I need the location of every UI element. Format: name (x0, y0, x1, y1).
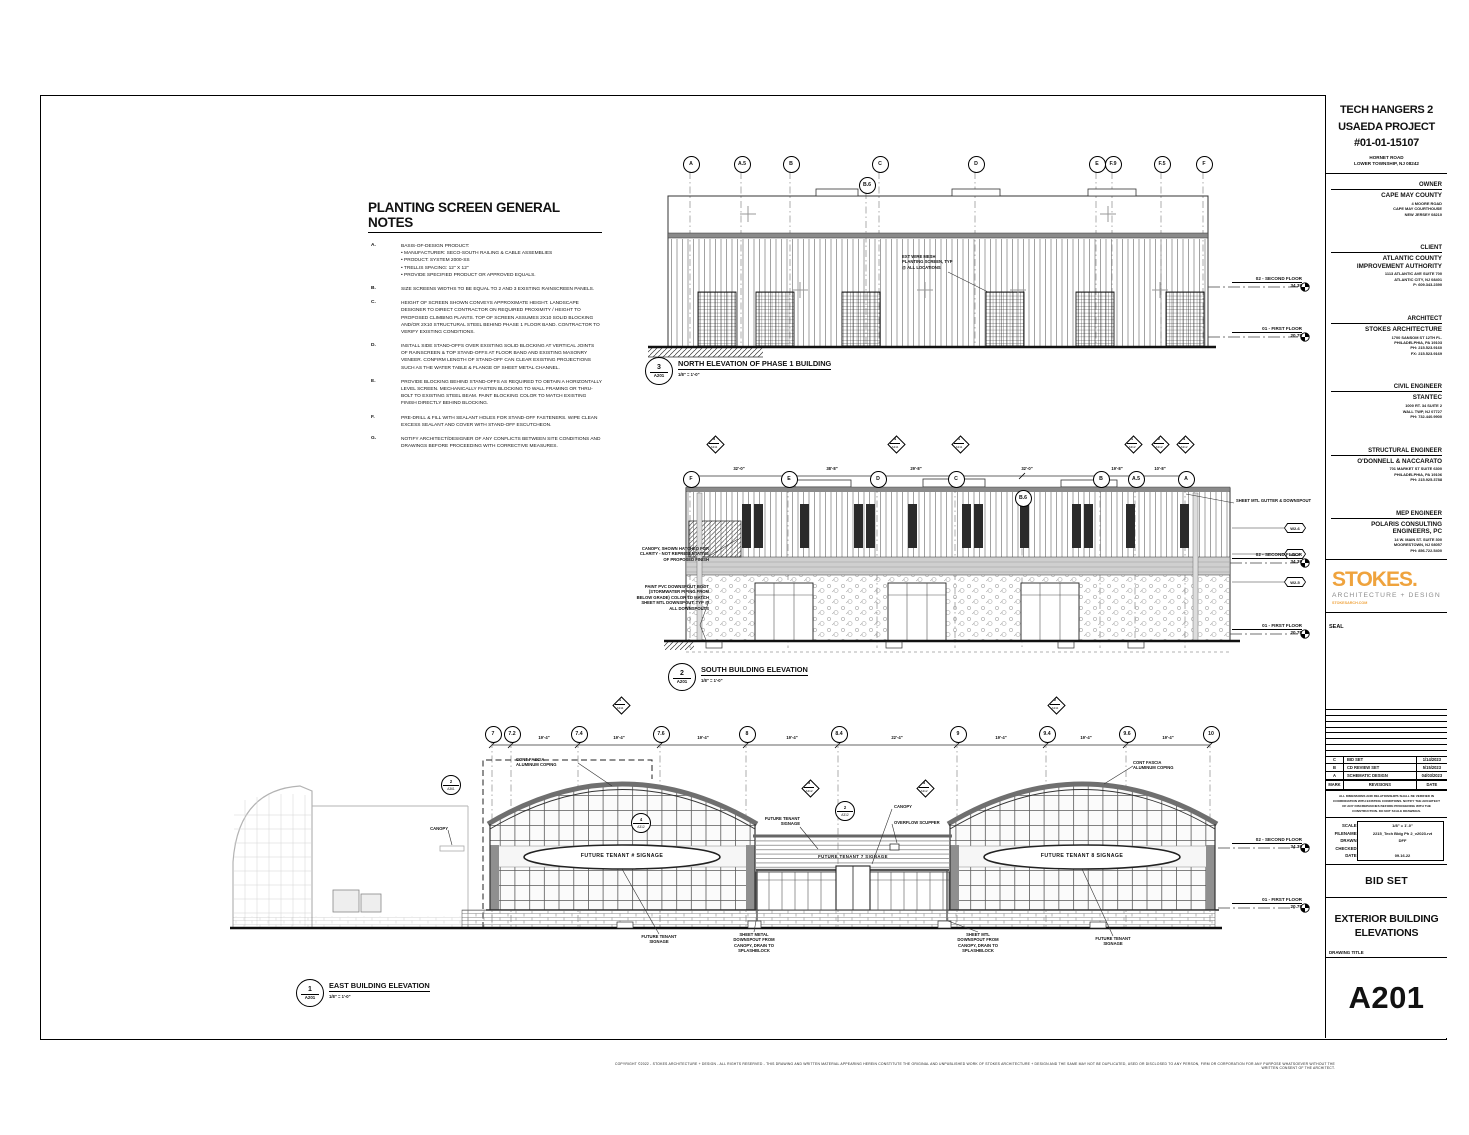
section-sheet: A311 (951, 445, 967, 449)
info-value: 09.16.22 (1361, 853, 1444, 858)
grid-bubble: 10 (1203, 726, 1220, 743)
level-name: 01 - FIRST FLOOR (1232, 897, 1302, 904)
consultant-address: 1000 RT. 34 SUITE 2 WALL TWP, NJ 07727 P… (1331, 403, 1442, 419)
section-number: 2 (1151, 437, 1167, 441)
level-marker: 01 - FIRST FLOOR20.75 (1232, 897, 1302, 909)
note-item: B.SIZE SCREENS WIDTHS TO BE EQUAL TO 2 A… (368, 286, 602, 293)
section-sheet: A311 (1047, 706, 1063, 710)
note-key: E. (368, 379, 401, 408)
dimension-label: 19'-4" (786, 735, 797, 740)
drawing-title-box: EXTERIOR BUILDING ELEVATIONS DRAWING TIT… (1326, 897, 1447, 957)
section-number: 1 (1124, 437, 1140, 441)
note-item: A.BASIS-OF-DESIGN PRODUCT: • MANUFACTURE… (368, 243, 602, 279)
level-marker: 01 - FIRST FLOOR20.75 (1232, 326, 1302, 338)
viewport-number: 2 (673, 670, 692, 679)
dimension-label: 32'-0" (1021, 466, 1032, 471)
revision-header-row: MARK REVISIONS DATE (1326, 780, 1447, 790)
canopy-callout: CANOPY, SHOWN HATCHED FOR CLARITY - NOT … (597, 546, 709, 562)
planting-screen-callout: EXT WIRE MESH PLANTING SCREEN, TYP @ ALL… (902, 254, 994, 270)
grid-bubble: D (870, 471, 887, 488)
section-number: 4 (1176, 437, 1192, 441)
window-tag: W2-5 (1284, 577, 1306, 587)
dimension-label: 29'-8" (910, 466, 921, 471)
dimension-label: 19'-4" (538, 735, 549, 740)
tenant-sign-callout-left: FUTURE TENANT SIGNAGE (630, 934, 688, 945)
viewport-title: SOUTH BUILDING ELEVATION (701, 665, 808, 676)
note-text: INSTALL SIDE STAND-OFFS OVER EXISTING SO… (401, 343, 602, 372)
canopy-callout-mid: CANOPY (894, 804, 944, 809)
firm-logo: STOKES. ARCHITECTURE + DESIGN STOKESARCH… (1326, 559, 1447, 612)
downspout-callout-left: SHEET METAL DOWNSPOUT FROM CANOPY, DRAIN… (722, 932, 786, 954)
revision-desc: SCHEMATIC DESIGN (1344, 772, 1417, 779)
level-elevation: 34.39 (1232, 283, 1302, 288)
level-elevation: 34.39 (1232, 844, 1302, 849)
gutter-callout: SHEET MTL GUTTER & DOWNSPOUT (1236, 498, 1321, 503)
section-number: 1 (951, 437, 967, 441)
level-name: 01 - FIRST FLOOR (1232, 623, 1302, 630)
revision-row: A SCHEMATIC DESIGN 04/03/2023 (1326, 772, 1447, 780)
consultant-civil: CIVIL ENGINEER STANTEC 1000 RT. 34 SUITE… (1331, 384, 1442, 419)
viewport-title: EAST BUILDING ELEVATION (329, 981, 430, 992)
downspout-callout-right: SHEET MTL DOWNSPOUT FROM CANOPY, DRAIN T… (946, 932, 1010, 954)
note-key: A. (368, 243, 401, 279)
grid-bubble: F.9 (1105, 156, 1122, 173)
consultant-role: MEP ENGINEER (1331, 511, 1442, 519)
grid-bubble: C (948, 471, 965, 488)
drawing-title: EXTERIOR BUILDING ELEVATIONS (1328, 912, 1445, 941)
grid-bubble: D (968, 156, 985, 173)
consultants-block: OWNER CAPE MAY COUNTY 4 MOORE ROAD CAPE … (1326, 174, 1447, 559)
grid-bubble: C (872, 156, 889, 173)
section-sheet: A312 (801, 789, 817, 793)
dimension-label: 19'-4" (613, 735, 624, 740)
grid-bubble: B (783, 156, 800, 173)
note-item: G.NOTIFY ARCHITECT/DESIGNER OF ANY CONFL… (368, 436, 602, 450)
info-value: 1/8" = 1'-0" (1361, 823, 1444, 828)
level-marker: 02 - SECOND FLOOR34.39 (1232, 552, 1302, 564)
info-value: DFF (1361, 838, 1444, 843)
consultant-address: 14 W. MAIN ST. SUITE 300 MOORESTOWN, NJ … (1331, 537, 1442, 553)
viewport-number: 3 (650, 364, 669, 373)
info-row-drawn: DRAWN:DFF (1328, 837, 1444, 845)
section-marker: 2A311 (1047, 696, 1063, 712)
section-sheet: A311 (887, 445, 903, 449)
consultant-name: STOKES ARCHITECTURE (1331, 326, 1442, 334)
consultant-role: ARCHITECT (1331, 316, 1442, 324)
overflow-scupper-callout: OVERFLOW SCUPPER (894, 820, 954, 825)
grid-bubble: A (683, 156, 700, 173)
info-row-date: DATE:09.16.22 (1328, 852, 1444, 860)
window-tag-label: W2-6 (1285, 524, 1305, 532)
note-key: D. (368, 343, 401, 372)
note-key: F. (368, 415, 401, 429)
sheet-number-box: A201 (1326, 957, 1447, 1038)
section-sheet: A312 (1124, 445, 1140, 449)
sheet-number: A201 (1348, 980, 1424, 1016)
section-sheet: A311 (612, 706, 628, 710)
seal-box: SEAL (1326, 612, 1447, 709)
viewport-tag-east: 1A201 EAST BUILDING ELEVATION1/8" = 1'-0… (296, 979, 430, 1007)
revision-mark: B (1326, 764, 1344, 771)
consultant-name: ATLANTIC COUNTY IMPROVEMENT AUTHORITY (1331, 255, 1442, 270)
section-marker: 1A311 (951, 435, 967, 451)
grid-bubble: E (781, 471, 798, 488)
note-text: PROVIDE BLOCKING BEHIND STAND-OFFS AS RE… (401, 379, 602, 408)
canopy-callout-left: CANOPY (408, 826, 448, 831)
drawing-info-block: SCALE:1/8" = 1'-0" FILENAME:2215_Tech Bl… (1326, 817, 1447, 864)
viewport-circle: 1A201 (296, 979, 324, 1007)
note-key: G. (368, 436, 401, 450)
project-title-block: TECH HANGERS 2 USAEDA PROJECT #01-01-151… (1326, 95, 1447, 174)
note-item: F.PRE-DRILL & FILL WITH SEALANT HOLES FO… (368, 415, 602, 429)
notes-title: PLANTING SCREEN GENERAL NOTES (368, 200, 602, 233)
level-elevation: 20.75 (1232, 904, 1302, 909)
detail-sheet: A361 (442, 787, 460, 791)
detail-marker: 4A312 (631, 813, 651, 833)
window-tag: W2-6 (1284, 523, 1306, 533)
consultant-mep: MEP ENGINEER POLARIS CONSULTING ENGINEER… (1331, 511, 1442, 554)
grid-bubble: 7.2 (504, 726, 521, 743)
grid-bubble: 9.6 (1119, 726, 1136, 743)
grid-bubble: F.5 (1154, 156, 1171, 173)
section-sheet: A311 (706, 445, 722, 449)
note-text: BASIS-OF-DESIGN PRODUCT: • MANUFACTURER:… (401, 243, 602, 279)
viewport-scale: 1/8" = 1'-0" (678, 372, 831, 377)
consultant-role: STRUCTURAL ENGINEER (1331, 448, 1442, 456)
viewport-sheet: A201 (654, 373, 665, 378)
tenant-sign-callout-top: FUTURE TENANT SIGNAGE (752, 816, 800, 827)
disclaimer-note: ALL DIMENSIONS AND RELATIONSHIPS SHALL B… (1326, 790, 1447, 817)
copyright-line: COPYRIGHT ©2022 - STOKES ARCHITECTURE + … (600, 1062, 1335, 1070)
consultant-owner: OWNER CAPE MAY COUNTY 4 MOORE ROAD CAPE … (1331, 182, 1442, 217)
viewport-title-group: SOUTH BUILDING ELEVATION1/8" = 1'-0" (701, 663, 808, 683)
note-text: NOTIFY ARCHITECT/DESIGNER OF ANY CONFLIC… (401, 436, 602, 450)
consultant-address: 4 MOORE ROAD CAPE MAY COURTHOUSE NEW JER… (1331, 201, 1442, 217)
revision-header-desc: REVISIONS (1344, 781, 1417, 789)
consultant-role: OWNER (1331, 182, 1442, 190)
detail-number: 2 (442, 779, 460, 784)
grid-bubble: 8.4 (831, 726, 848, 743)
level-name: 02 - SECOND FLOOR (1232, 276, 1302, 283)
revision-date: 1/14/2023 (1417, 757, 1447, 764)
section-marker: 2A312 (1151, 435, 1167, 451)
dimension-label: 19'-4" (697, 735, 708, 740)
viewport-tag-south: 2A201 SOUTH BUILDING ELEVATION1/8" = 1'-… (668, 663, 808, 691)
detail-marker: 2A361 (441, 775, 461, 795)
detail-marker: 2A312 (835, 801, 855, 821)
revision-desc: BID SET (1344, 757, 1417, 764)
level-elevation: 34.39 (1232, 559, 1302, 564)
revisions-table: C BID SET 1/14/2023 B CD REVIEW SET 5/15… (1326, 709, 1447, 790)
info-label: SCALE: (1328, 823, 1361, 828)
grid-bubble: 7.4 (571, 726, 588, 743)
viewport-number: 1 (301, 986, 320, 995)
section-sheet: A312 (916, 789, 932, 793)
info-label: FILENAME: (1328, 831, 1361, 836)
note-item: D.INSTALL SIDE STAND-OFFS OVER EXISTING … (368, 343, 602, 372)
grid-bubble: 8 (739, 726, 756, 743)
consultant-role: CIVIL ENGINEER (1331, 384, 1442, 392)
revision-row: B CD REVIEW SET 5/15/2023 (1326, 764, 1447, 772)
info-label: DRAWN: (1328, 838, 1361, 843)
tenant-signage-right: FUTURE TENANT 8 SIGNAGE (1002, 853, 1162, 859)
viewport-sheet: A201 (305, 995, 316, 1000)
viewport-title: NORTH ELEVATION OF PHASE 1 BUILDING (678, 359, 831, 370)
level-marker: 02 - SECOND FLOOR34.39 (1232, 837, 1302, 849)
info-label: DATE: (1328, 853, 1361, 858)
grid-bubble: B.6 (1015, 490, 1032, 507)
section-marker: 3A312 (801, 779, 817, 795)
consultant-name: POLARIS CONSULTING ENGINEERS, PC (1331, 521, 1442, 536)
logo-url: STOKESARCH.COM (1332, 601, 1441, 605)
consultant-address: 1113 ATLANTIC AVE SUITE 700 ATLANTIC CIT… (1331, 271, 1442, 287)
revision-date: 5/15/2023 (1417, 764, 1447, 771)
level-elevation: 20.75 (1232, 333, 1302, 338)
grid-bubble: A (1178, 471, 1195, 488)
grid-bubble: B.6 (859, 177, 876, 194)
section-marker: 3A311 (706, 435, 722, 451)
viewport-title-group: NORTH ELEVATION OF PHASE 1 BUILDING1/8" … (678, 357, 831, 377)
grid-bubble: 9 (950, 726, 967, 743)
viewport-tag-north: 3A201 NORTH ELEVATION OF PHASE 1 BUILDIN… (645, 357, 831, 385)
revision-date: 04/03/2023 (1417, 772, 1447, 779)
coping-callout-left: CONT FASCIA ALUMINUM COPING (516, 757, 580, 768)
level-name: 01 - FIRST FLOOR (1232, 326, 1302, 333)
viewport-circle: 2A201 (668, 663, 696, 691)
downspout-boot-callout: PAINT PVC DOWNSPOUT BOOT (STORMWATER PIP… (597, 584, 709, 611)
section-sheet: A312 (1176, 445, 1192, 449)
drawing-title-label: DRAWING TITLE (1329, 950, 1364, 955)
tenant-sign-callout-right: FUTURE TENANT SIGNAGE (1084, 936, 1142, 947)
seal-label: SEAL (1329, 624, 1344, 630)
revision-header-mark: MARK (1326, 781, 1344, 789)
section-marker: 4A312 (1176, 435, 1192, 451)
consultant-address: 701 MARKET ST SUITE 6300 PHILADELPHIA, P… (1331, 466, 1442, 482)
south-elevation-drawing (664, 473, 1309, 652)
dimension-label: 38'-8" (826, 466, 837, 471)
project-address: HORNET ROAD LOWER TOWNSHIP, NJ 08242 (1328, 155, 1445, 169)
note-text: HEIGHT OF SCREEN SHOWN CONVEYS APPROXIMA… (401, 300, 602, 336)
dimension-label: 22'-4" (891, 735, 902, 740)
section-number: 3 (706, 437, 722, 441)
detail-sheet: A312 (632, 825, 650, 829)
dimension-label: 19'-4" (995, 735, 1006, 740)
viewport-scale: 1/8" = 1'-0" (329, 994, 430, 999)
note-key: C. (368, 300, 401, 336)
section-number: 2 (1047, 698, 1063, 702)
note-text: PRE-DRILL & FILL WITH SEALANT HOLES FOR … (401, 415, 602, 429)
dimension-label: 19'-4" (1080, 735, 1091, 740)
grid-bubble: A.5 (1128, 471, 1145, 488)
level-marker: 02 - SECOND FLOOR34.39 (1232, 276, 1302, 288)
note-item: E.PROVIDE BLOCKING BEHIND STAND-OFFS AS … (368, 379, 602, 408)
consultant-address: 1700 SANSOM ST 12TH FL. PHILADELPHIA, PA… (1331, 335, 1442, 357)
tenant-signage-center: FUTURE TENANT 7 SIGNAGE (793, 854, 913, 859)
grid-bubble: A.5 (734, 156, 751, 173)
consultant-name: STANTEC (1331, 394, 1442, 402)
note-item: C.HEIGHT OF SCREEN SHOWN CONVEYS APPROXI… (368, 300, 602, 336)
section-marker: 3A312 (916, 779, 932, 795)
revision-desc: CD REVIEW SET (1344, 764, 1417, 771)
elevation-drawings-canvas (0, 0, 1469, 1135)
revision-mark: C (1326, 757, 1344, 764)
consultant-role: CLIENT (1331, 245, 1442, 253)
consultant-name: CAPE MAY COUNTY (1331, 192, 1442, 200)
info-row-filename: FILENAME:2215_Tech Bldg Ph 2_v2023.rvt (1328, 829, 1444, 837)
revision-header-date: DATE (1417, 781, 1447, 789)
note-key: B. (368, 286, 401, 293)
section-marker: 1A311 (612, 696, 628, 712)
consultant-client: CLIENT ATLANTIC COUNTY IMPROVEMENT AUTHO… (1331, 245, 1442, 288)
info-row-checked: CHECKED: (1328, 844, 1444, 852)
stokes-logo: STOKES. (1332, 569, 1441, 590)
window-tag-label: W2-5 (1285, 578, 1305, 586)
dimension-label: 10'-8" (1154, 466, 1165, 471)
section-number: 3 (916, 781, 932, 785)
grid-bubble: 7 (485, 726, 502, 743)
level-marker: 01 - FIRST FLOOR20.75 (1232, 623, 1302, 635)
viewport-sheet: A201 (677, 679, 688, 684)
note-text: SIZE SCREENS WIDTHS TO BE EQUAL TO 2 AND… (401, 286, 602, 293)
consultant-architect: ARCHITECT STOKES ARCHITECTURE 1700 SANSO… (1331, 316, 1442, 356)
info-label: CHECKED: (1328, 846, 1361, 851)
issue-label: BID SET (1326, 864, 1447, 897)
section-number: 3 (801, 781, 817, 785)
grid-bubble: E (1089, 156, 1106, 173)
revision-mark: A (1326, 772, 1344, 779)
project-title: TECH HANGERS 2 USAEDA PROJECT #01-01-151… (1328, 102, 1445, 152)
viewport-circle: 3A201 (645, 357, 673, 385)
info-row-scale: SCALE:1/8" = 1'-0" (1328, 822, 1444, 830)
section-number: 1 (612, 698, 628, 702)
dimension-label: 19'-8" (1111, 466, 1122, 471)
logo-tagline: ARCHITECTURE + DESIGN (1332, 592, 1441, 599)
level-elevation: 20.75 (1232, 630, 1302, 635)
detail-number: 2 (836, 805, 854, 810)
section-marker: 4A311 (887, 435, 903, 451)
planting-screen-general-notes: PLANTING SCREEN GENERAL NOTES A.BASIS-OF… (368, 200, 602, 457)
consultant-name: O'DONNELL & NACCARATO (1331, 458, 1442, 466)
grid-bubble: F (1196, 156, 1213, 173)
viewport-title-group: EAST BUILDING ELEVATION1/8" = 1'-0" (329, 979, 430, 999)
info-value: 2215_Tech Bldg Ph 2_v2023.rvt (1361, 831, 1444, 836)
section-sheet: A312 (1151, 445, 1167, 449)
title-block: TECH HANGERS 2 USAEDA PROJECT #01-01-151… (1325, 95, 1447, 1038)
grid-bubble: B (1093, 471, 1110, 488)
tenant-signage-left: FUTURE TENANT # SIGNAGE (542, 853, 702, 859)
dimension-label: 32'-0" (733, 466, 744, 471)
section-marker: 1A312 (1124, 435, 1140, 451)
level-name: 02 - SECOND FLOOR (1232, 552, 1302, 559)
dimension-label: 19'-4" (1162, 735, 1173, 740)
level-name: 02 - SECOND FLOOR (1232, 837, 1302, 844)
consultant-structural: STRUCTURAL ENGINEER O'DONNELL & NACCARAT… (1331, 448, 1442, 483)
grid-bubble: F (683, 471, 700, 488)
section-number: 4 (887, 437, 903, 441)
grid-bubble: 7.6 (653, 726, 670, 743)
detail-number: 4 (632, 817, 650, 822)
coping-callout-right: CONT FASCIA ALUMINUM COPING (1133, 760, 1197, 771)
viewport-scale: 1/8" = 1'-0" (701, 678, 808, 683)
detail-sheet: A312 (836, 813, 854, 817)
revision-row: C BID SET 1/14/2023 (1326, 757, 1447, 765)
grid-bubble: 9.4 (1039, 726, 1056, 743)
